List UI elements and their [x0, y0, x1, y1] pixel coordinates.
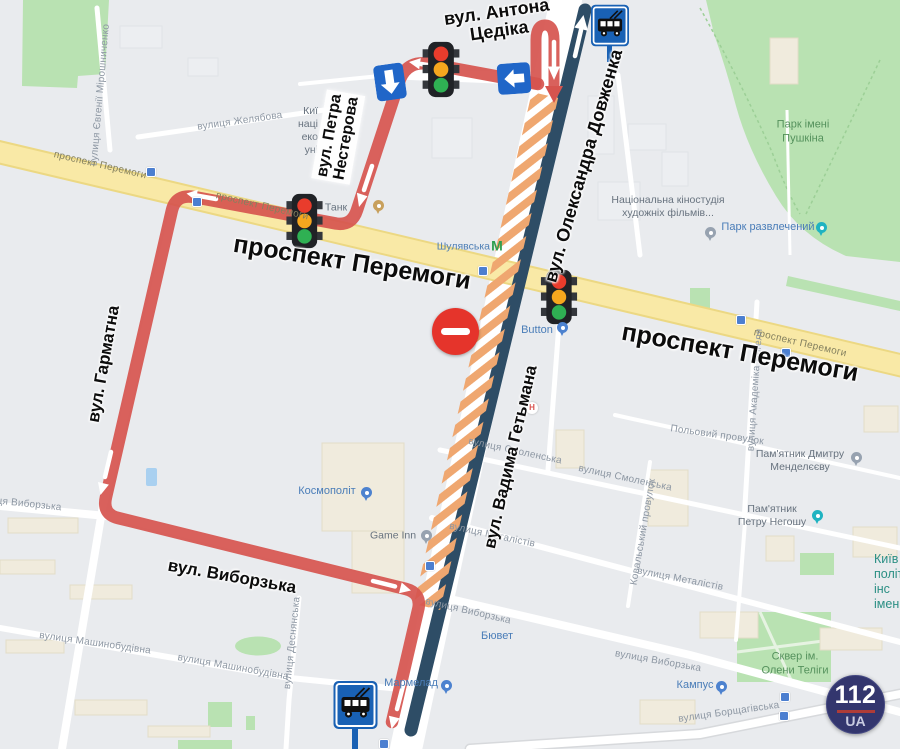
logo-112ua: 112 UA: [826, 675, 885, 734]
traffic-light-icon: [423, 42, 460, 97]
one-way-down-sign: [373, 62, 408, 102]
one-way-left-sign: [497, 62, 532, 95]
logo-ua-text: UA: [827, 714, 884, 728]
map-base-svg: [0, 0, 900, 749]
map-canvas[interactable]: вулиця Євгенії Мірошниченковулиця Желябо…: [0, 0, 900, 749]
trolleybus-stop-icon: [334, 681, 378, 749]
no-entry-icon: [432, 308, 479, 355]
parks-layer: [22, 0, 900, 749]
logo-112-text: 112: [827, 683, 884, 708]
